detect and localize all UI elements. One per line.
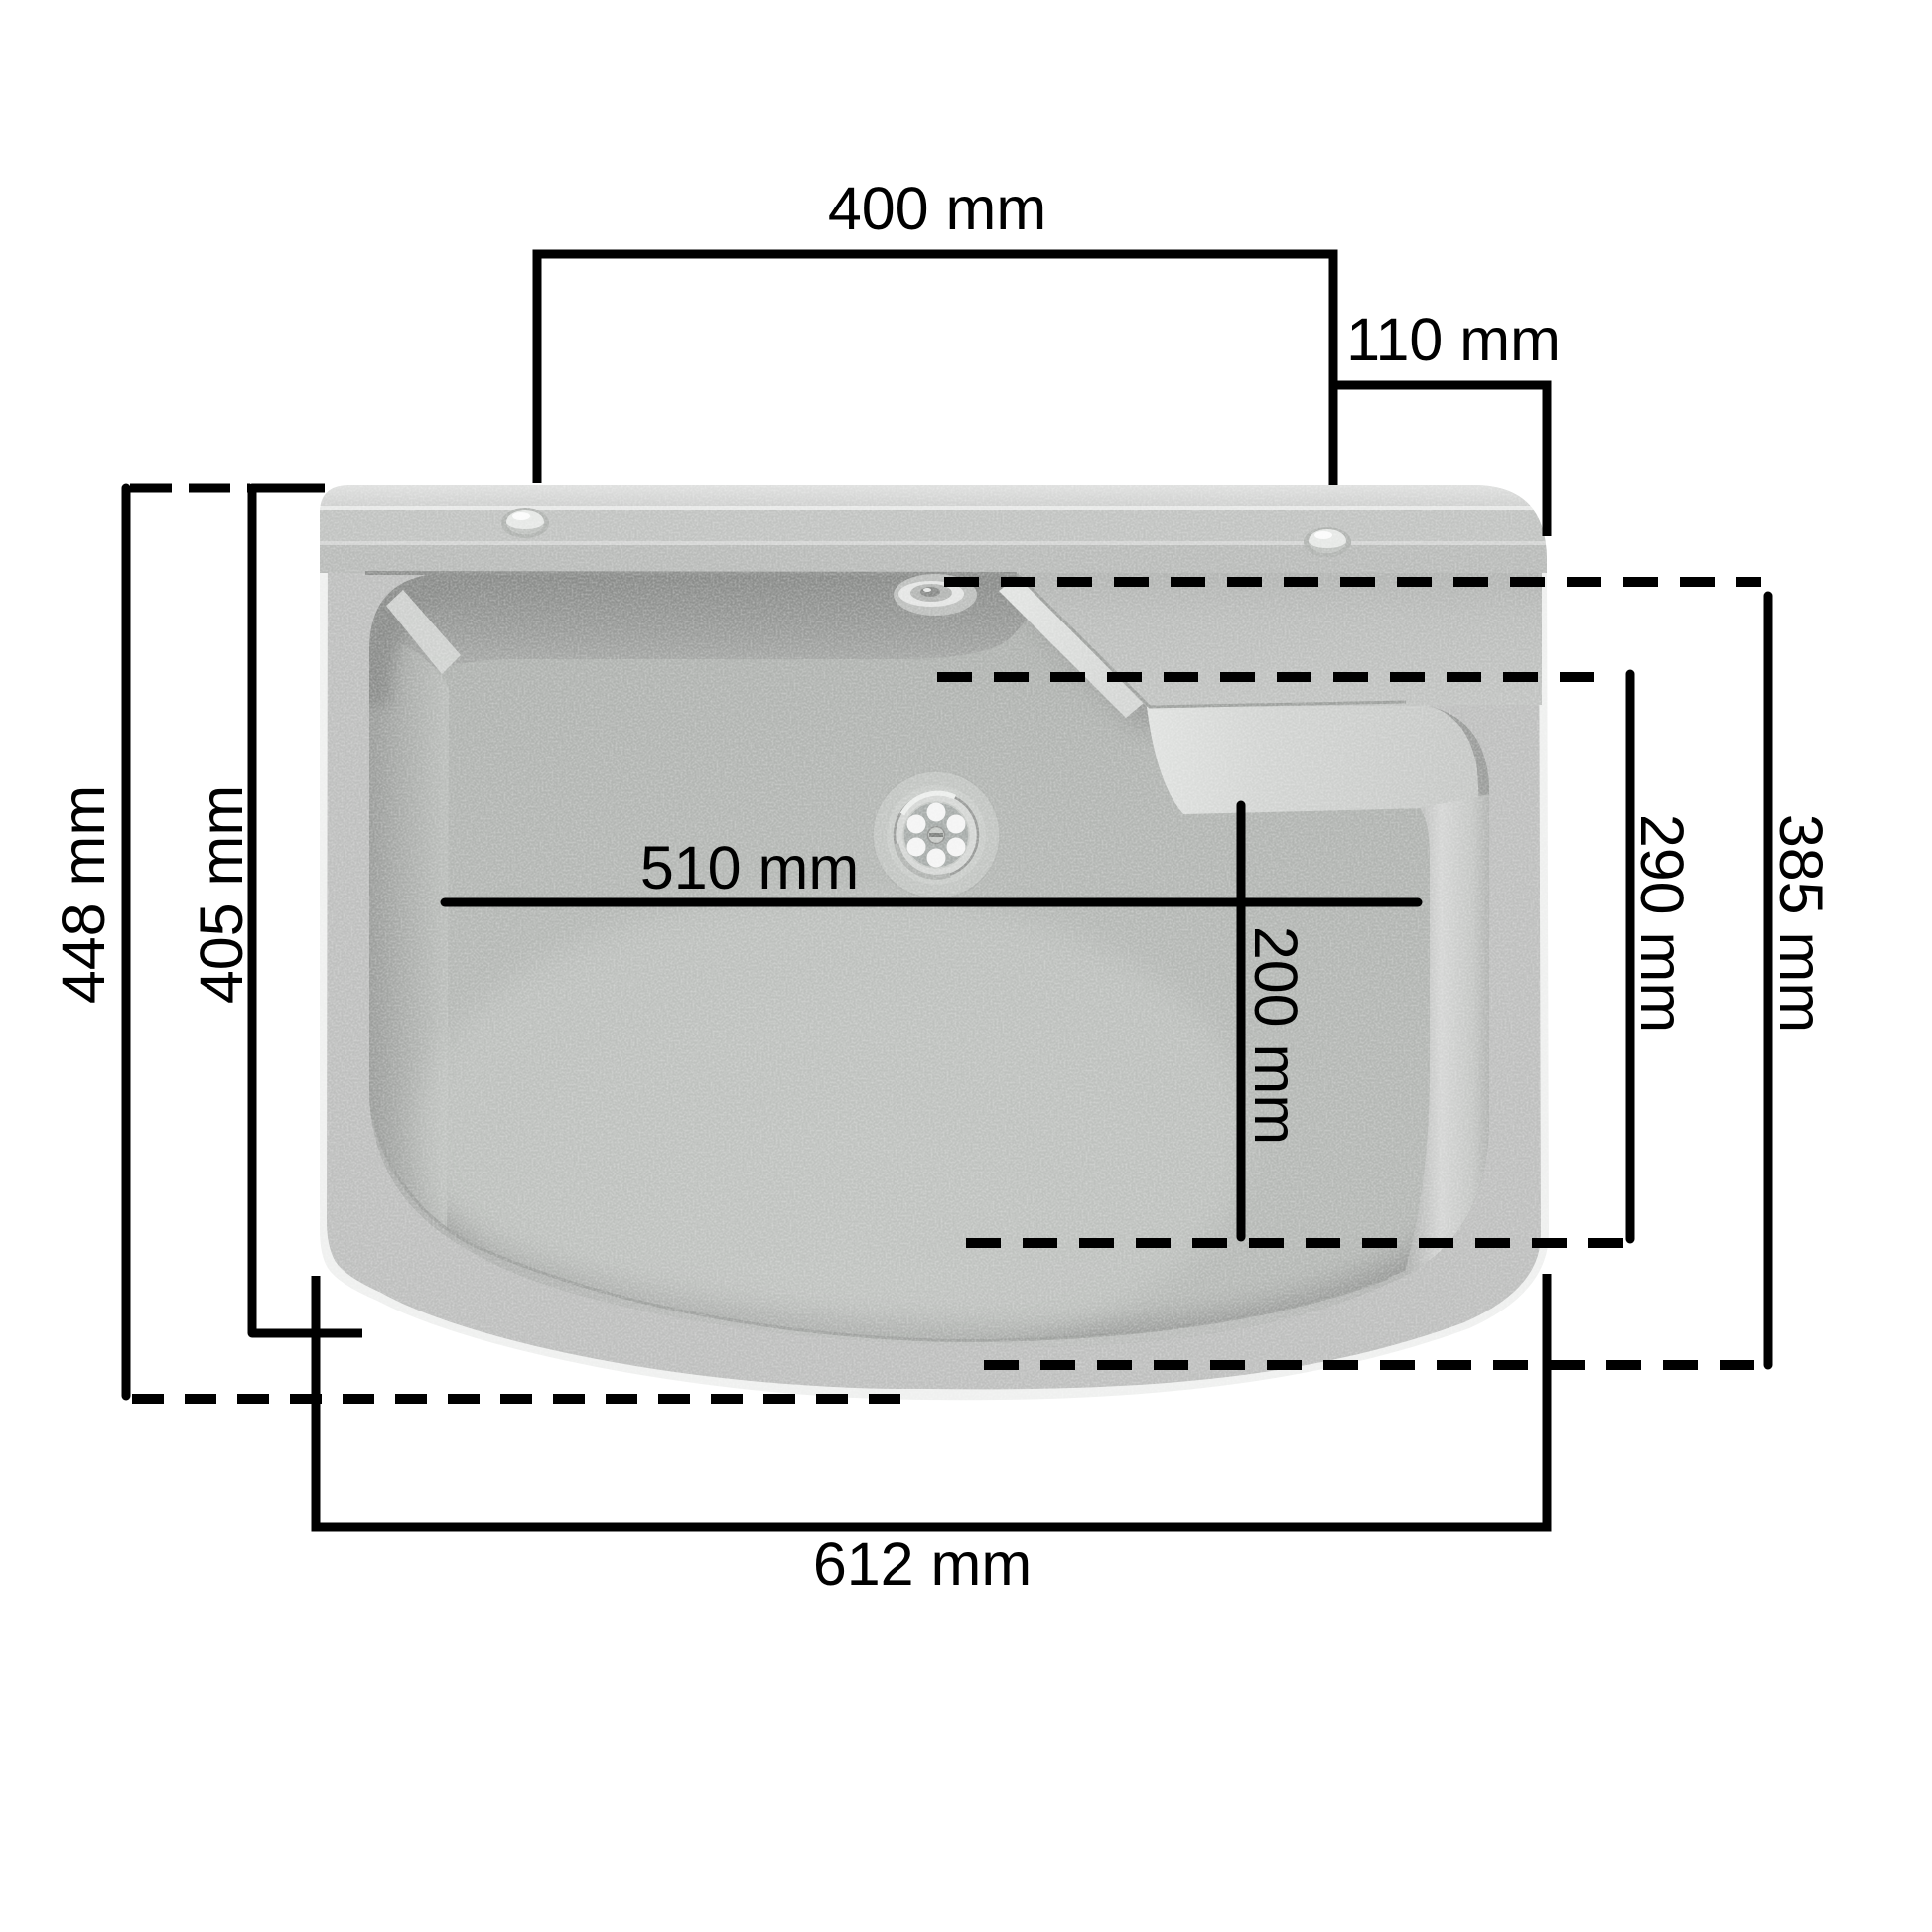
svg-text:448 mm: 448 mm <box>50 785 117 1004</box>
svg-text:200 mm: 200 mm <box>1242 926 1310 1145</box>
svg-text:110 mm: 110 mm <box>1346 306 1561 373</box>
svg-text:405 mm: 405 mm <box>188 785 255 1004</box>
svg-text:400 mm: 400 mm <box>828 175 1046 242</box>
svg-text:385 mm: 385 mm <box>1767 814 1835 1033</box>
svg-text:612 mm: 612 mm <box>813 1530 1032 1597</box>
svg-text:510 mm: 510 mm <box>640 834 859 901</box>
svg-text:290 mm: 290 mm <box>1628 814 1696 1033</box>
